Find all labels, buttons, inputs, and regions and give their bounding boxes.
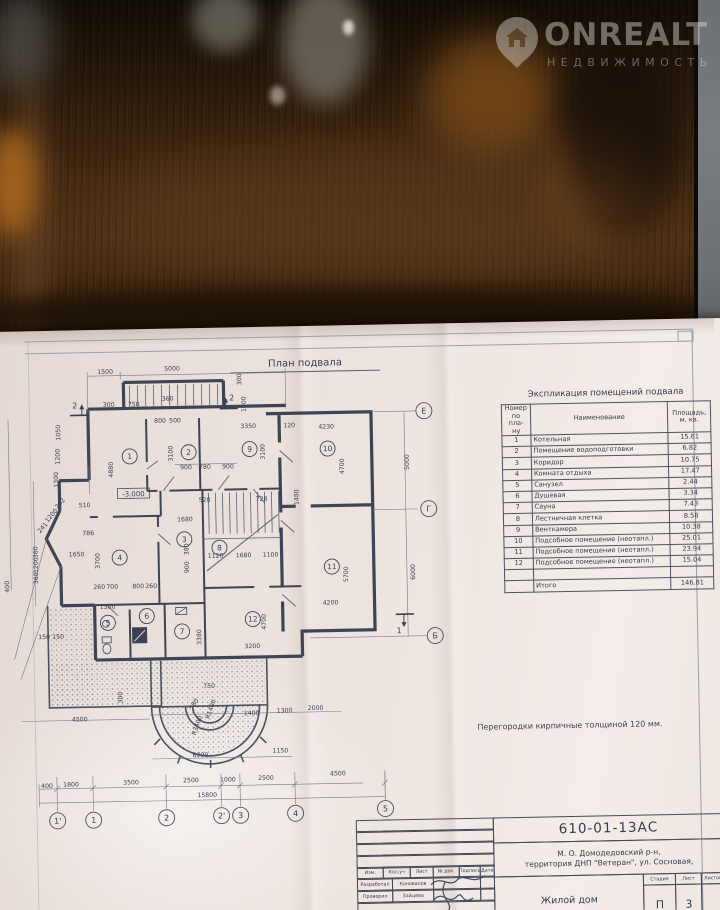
dim-label: 1100	[241, 396, 248, 412]
stair-treads	[129, 383, 282, 573]
dim-label: 1300	[277, 707, 293, 714]
object-name: Жилой дом	[494, 874, 645, 910]
dim-label: 728	[256, 496, 268, 503]
room-number: 9	[247, 445, 252, 454]
role-checked: Проверил	[357, 890, 393, 903]
room-number-bubbles: 129103485671112	[97, 440, 341, 641]
dim-label: 1480	[293, 489, 300, 505]
sheet-content: План подвала	[0, 318, 720, 910]
room-number: 1	[127, 452, 132, 461]
dim-label: 5000	[164, 365, 180, 372]
level-mark-value: -3.000	[122, 490, 145, 498]
dim-label: 3350	[240, 423, 256, 430]
room-table: Экспликация помещений подвала Номер по п…	[499, 386, 717, 593]
dim-label: 786	[82, 530, 94, 537]
dim-label: 900	[222, 463, 234, 470]
axis-label: Е	[421, 406, 426, 415]
dim-label: 4700	[339, 458, 346, 474]
room-number: 2	[186, 448, 191, 457]
dim-label: 300	[103, 402, 115, 409]
dim-label: 300	[236, 373, 243, 385]
dim-label: 3380	[196, 629, 203, 645]
dim-label: 4230	[318, 423, 334, 430]
dim-label: 6000	[410, 564, 417, 580]
dim-label: 150	[52, 634, 64, 641]
dim-label: 6200	[193, 752, 209, 759]
room-number: 12	[248, 615, 258, 624]
dim-label: 360	[32, 546, 39, 558]
bright-speck	[343, 20, 354, 35]
dim-label: 400	[4, 581, 11, 593]
axis-extension-line	[90, 776, 97, 811]
wood-band	[110, 145, 660, 280]
sheet-value: 3	[675, 883, 703, 910]
dim-label: 1200	[33, 557, 40, 573]
dim-label: 900	[180, 464, 192, 471]
dim-label: 1500	[97, 369, 113, 376]
axis-label: 3	[238, 811, 243, 820]
dim-label: 1300	[53, 472, 60, 488]
dim-label: 360	[33, 572, 40, 584]
dim-label: 242	[54, 497, 67, 511]
dim-label: 750	[128, 401, 140, 408]
sheets-value	[701, 883, 720, 910]
axis-label: 4	[293, 809, 298, 818]
room-number: 11	[327, 562, 337, 571]
watermark-brand: ONREALT	[544, 20, 708, 51]
dim-label: 1680	[236, 552, 252, 559]
stage-value: П	[643, 884, 677, 910]
dim-label: 150	[38, 634, 50, 641]
dim-label: 3100	[168, 446, 175, 462]
section-mark-label: 1	[396, 626, 401, 635]
interior-walls	[88, 416, 303, 660]
col-header-area: Площадь, м. кв.	[668, 401, 711, 433]
dim-label: 520	[199, 497, 211, 504]
axis-extension-line	[54, 777, 61, 812]
axis-extension-line	[163, 775, 170, 809]
dim-label: 700	[106, 584, 118, 591]
frame-corner-box	[677, 331, 693, 342]
dim-label: 260	[93, 584, 105, 591]
terrace-hatch	[50, 605, 267, 759]
watermark-logo: ONREALT НЕДВИЖИМОСТЬ	[492, 14, 718, 86]
dim-label: 1200	[55, 449, 62, 465]
section-mark-label: 2	[229, 393, 234, 402]
dim-label: 4880	[108, 462, 115, 478]
col-izm: Изм.	[357, 868, 384, 880]
room-number: 8	[217, 543, 222, 552]
dim-label: 3700	[95, 553, 102, 569]
photo-of-floorplan: ONREALT НЕДВИЖИМОСТЬ План подвала	[0, 0, 720, 910]
room-table-title: Экспликация помещений подвала	[499, 386, 713, 400]
axis-label: 1	[91, 816, 96, 825]
floorplan-drawing: -3.000 150050003001100300750360800500335…	[0, 351, 474, 838]
dim-label: 15800	[197, 792, 217, 799]
dim-label: 1100	[263, 552, 279, 559]
blueprint-paper: План подвала	[0, 318, 720, 910]
dim-label: 3200	[244, 643, 260, 650]
room-table-body: 1Котельная15.612Помещение водоподготовки…	[502, 432, 714, 593]
dim-label: 2500	[258, 775, 274, 782]
dim-label: 510	[79, 502, 91, 509]
col-header-name: Наименование	[530, 402, 668, 436]
section-mark-label: 2	[72, 401, 77, 410]
partition-note: Перегородки кирпичные толщиной 120 мм.	[442, 719, 698, 733]
axis-bubbles: 1'122'345ЕГБ	[42, 402, 447, 829]
dim-label: 800	[154, 418, 166, 425]
dim-label: 360	[162, 396, 174, 403]
room-number: 5	[105, 618, 110, 627]
title-block: Изм. Кол.уч Лист № док. Подпись Дата Раз…	[356, 813, 720, 910]
dim-label: 750	[203, 683, 215, 690]
dim-label: 2500	[183, 777, 199, 784]
axis-label: Б	[432, 631, 438, 640]
onrealt-pin-icon	[494, 16, 540, 70]
room-number: 7	[180, 627, 185, 636]
address-line-2: территория ДНП "Ветеран", ул. Сосновая,	[525, 856, 694, 869]
dim-label: 1400	[244, 710, 260, 717]
watermark-subtitle: НЕДВИЖИМОСТЬ	[547, 56, 713, 69]
dim-label: 1680	[177, 516, 193, 523]
dim-label: 300	[117, 692, 124, 704]
bright-speck	[270, 86, 285, 105]
room-number: 6	[144, 612, 149, 621]
dim-label: 1150	[272, 747, 288, 754]
room-number: 4	[117, 553, 122, 562]
dim-label: 3100	[260, 444, 267, 460]
dim-label: 5000	[404, 454, 411, 470]
col-header-num: Номер по пла- ну	[501, 404, 530, 436]
project-address: М. О. Домодедовский р-н, территория ДНП …	[493, 838, 720, 877]
col-koluch: Кол.уч	[383, 867, 411, 879]
dim-label: 4500	[330, 770, 346, 777]
handwritten-signatures	[427, 872, 492, 910]
room-number: 10	[323, 444, 333, 453]
dim-label: 260	[145, 583, 157, 590]
dim-label: 4500	[72, 716, 88, 723]
outer-walls	[43, 378, 375, 661]
dim-label: 500	[169, 417, 181, 424]
dim-label: 800	[132, 583, 144, 590]
room-number: 3	[182, 535, 187, 544]
dim-label: 1000	[220, 776, 236, 783]
dim-label: 400	[41, 783, 53, 790]
axis-label: 2'	[218, 811, 225, 820]
level-mark: -3.000	[117, 488, 149, 499]
axis-label: Г	[426, 504, 431, 513]
dim-label: 5700	[343, 566, 350, 582]
dim-label: 2000	[308, 705, 324, 712]
dim-label: 1800	[63, 781, 79, 788]
table-header-row: Номер по пла- ну Наименование Площадь, м…	[501, 401, 711, 436]
dim-label: 4200	[323, 599, 339, 606]
dim-label: 3500	[123, 779, 139, 786]
dim-label: 120	[283, 422, 295, 429]
dim-label: 780	[199, 464, 211, 471]
toilet	[102, 637, 111, 643]
dim-label: 1650	[69, 551, 85, 558]
dim-label: 1300	[100, 604, 116, 611]
axis-extension-line	[292, 772, 299, 804]
axis-label: 2	[164, 813, 169, 822]
axis-label: 1'	[54, 817, 61, 826]
dim-label: 1050	[55, 425, 62, 441]
role-developed: Разработал	[357, 878, 393, 891]
axis-label: 5	[383, 804, 388, 813]
dim-label: 4700	[261, 614, 268, 630]
axis-extension-line	[237, 773, 244, 806]
dim-label: 900	[184, 561, 191, 573]
axis-extension-line	[382, 770, 389, 799]
